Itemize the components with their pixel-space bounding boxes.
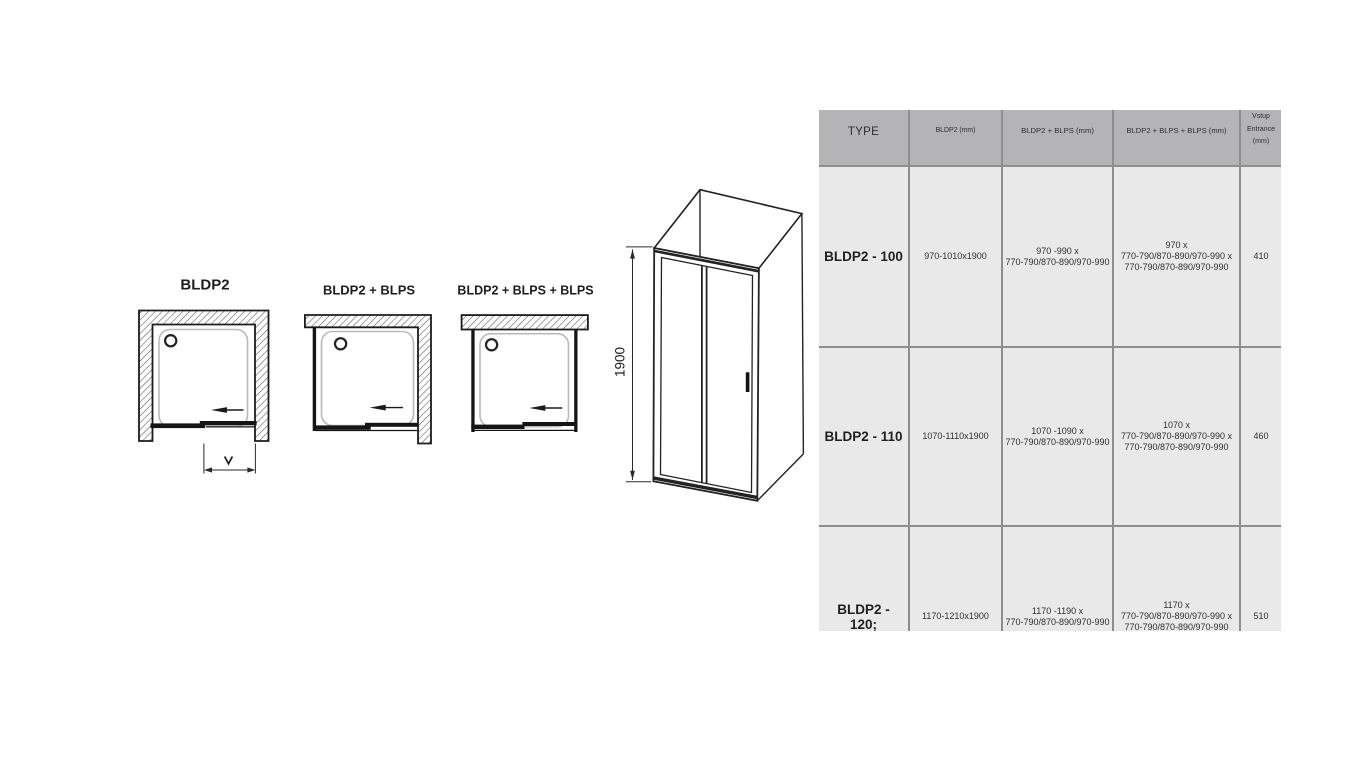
svg-text:BLDP2: BLDP2 (180, 277, 229, 294)
svg-text:BLDP2 + BLPS + BLPS: BLDP2 + BLPS + BLPS (457, 284, 593, 298)
svg-text:1900: 1900 (613, 347, 628, 377)
svg-text:BLDP2 + BLPS: BLDP2 + BLPS (323, 283, 415, 298)
